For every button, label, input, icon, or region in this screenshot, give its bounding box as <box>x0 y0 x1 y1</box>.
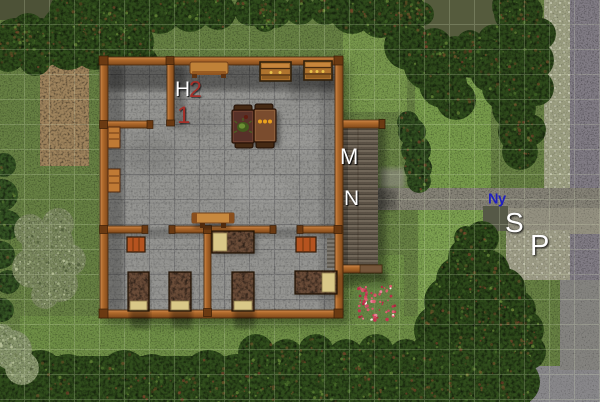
svg-text:Ny: Ny <box>488 192 506 208</box>
svg-text:P: P <box>530 230 549 262</box>
svg-text:M: M <box>340 144 358 169</box>
svg-text:S: S <box>505 207 524 238</box>
svg-text:H: H <box>175 78 190 101</box>
svg-text:N: N <box>344 187 359 210</box>
svg-text:2: 2 <box>189 76 202 102</box>
svg-text:1: 1 <box>177 102 190 129</box>
